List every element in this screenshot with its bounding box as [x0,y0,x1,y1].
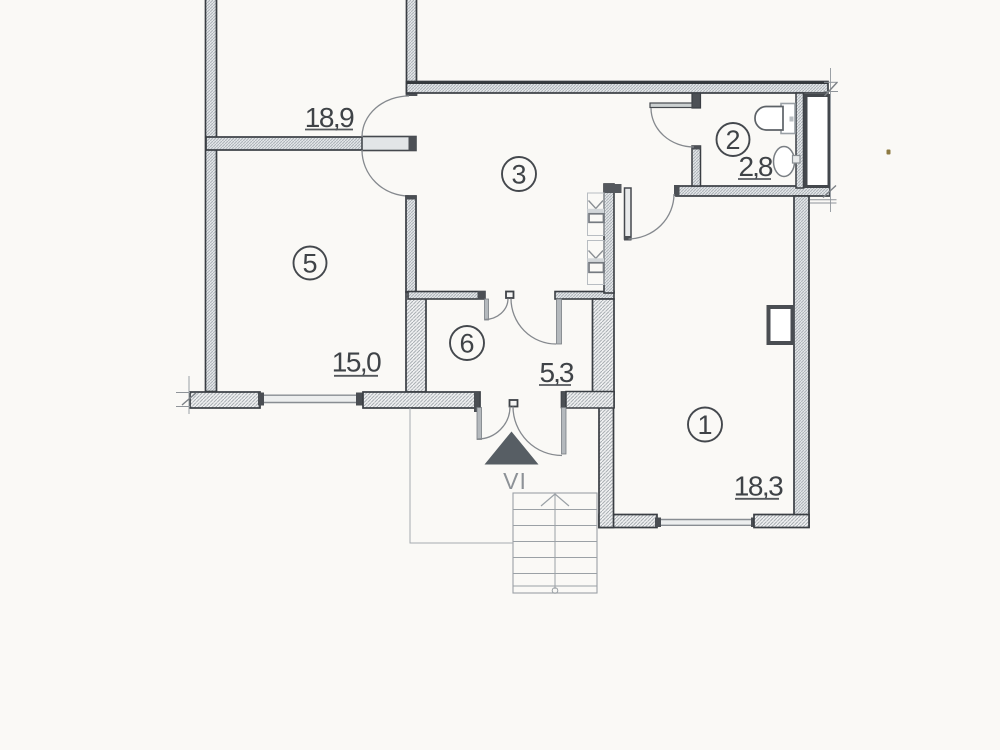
svg-text:6: 6 [459,329,474,359]
svg-text:2,8: 2,8 [739,151,773,182]
svg-text:5: 5 [302,249,317,279]
svg-text:18,3: 18,3 [734,471,783,502]
svg-text:5,3: 5,3 [540,357,574,388]
svg-text:1: 1 [697,410,712,440]
svg-text:3: 3 [511,160,526,190]
svg-text:15,0: 15,0 [332,347,381,378]
svg-text:18,9: 18,9 [305,102,354,133]
svg-text:VI: VI [503,468,527,494]
